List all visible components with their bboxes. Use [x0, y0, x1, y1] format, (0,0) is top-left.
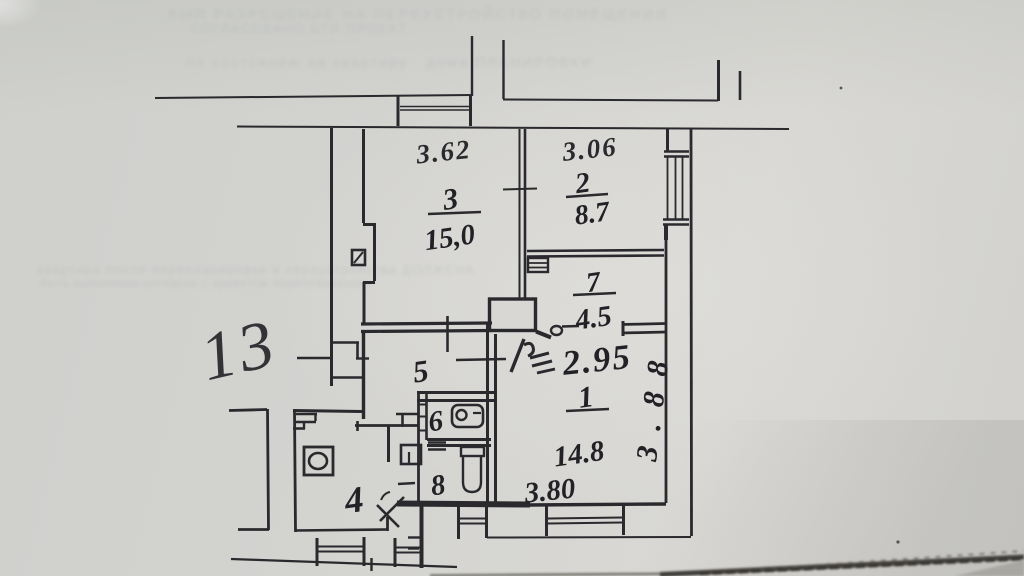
svg-text:4: 4 — [341, 479, 366, 522]
svg-text:4.5: 4.5 — [572, 300, 613, 337]
svg-text:8.7: 8.7 — [573, 196, 613, 232]
svg-text:3.88: 3.88 — [630, 343, 677, 464]
svg-text:14.8: 14.8 — [552, 435, 607, 474]
svg-text:3.62: 3.62 — [414, 134, 473, 170]
svg-text:2.95: 2.95 — [560, 337, 634, 383]
svg-text:13: 13 — [193, 304, 284, 395]
svg-text:8: 8 — [429, 469, 448, 503]
svg-text:15,0: 15,0 — [422, 218, 477, 257]
svg-text:5: 5 — [410, 353, 430, 390]
svg-text:3.06: 3.06 — [560, 131, 619, 167]
svg-text:3.80: 3.80 — [522, 473, 577, 510]
svg-text:6: 6 — [426, 405, 445, 439]
